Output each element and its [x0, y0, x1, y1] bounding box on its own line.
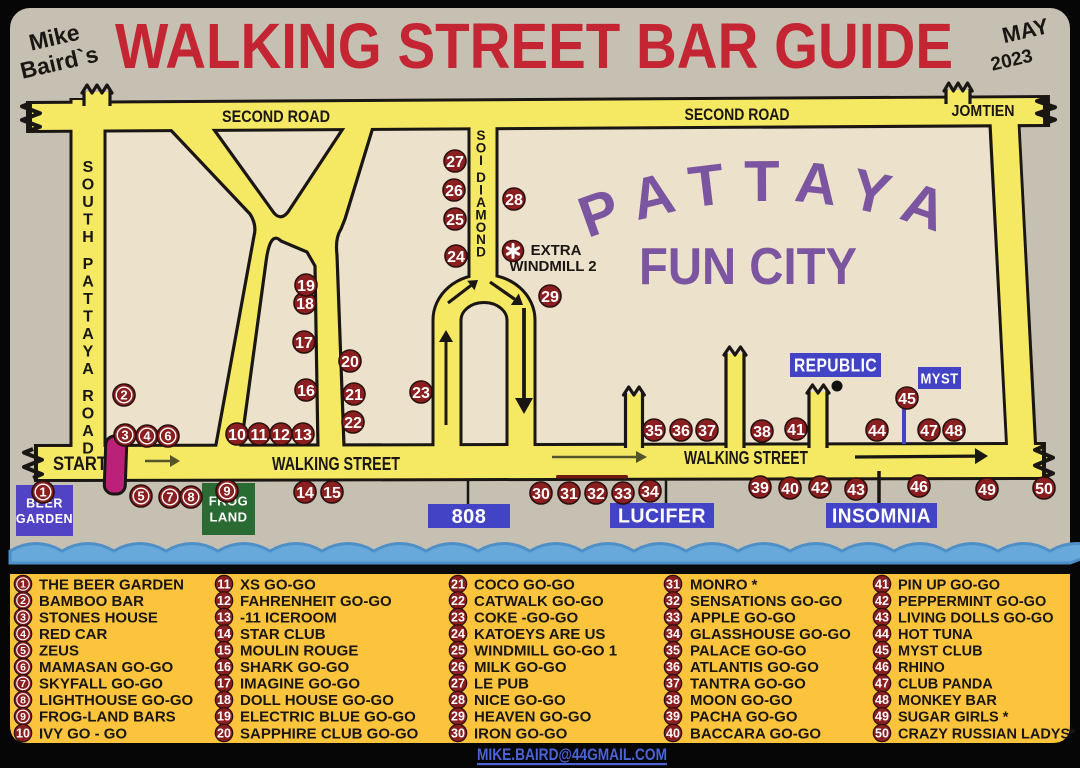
svg-text:PACHA GO-GO: PACHA GO-GO	[690, 709, 798, 726]
svg-text:42: 42	[811, 480, 829, 497]
svg-text:A: A	[82, 326, 94, 343]
svg-text:XS GO-GO: XS GO-GO	[240, 576, 316, 593]
svg-text:CRAZY RUSSIAN LADYS*: CRAZY RUSSIAN LADYS*	[898, 726, 1076, 742]
svg-text:43: 43	[847, 482, 865, 499]
svg-text:46: 46	[875, 660, 889, 674]
svg-text:BAMBOO BAR: BAMBOO BAR	[39, 593, 144, 610]
svg-text:BACCARA GO-GO: BACCARA GO-GO	[690, 725, 821, 742]
svg-text:MYST CLUB: MYST CLUB	[898, 644, 983, 660]
svg-text:31: 31	[560, 486, 578, 503]
svg-text:17: 17	[217, 677, 231, 691]
svg-text:LAND: LAND	[209, 510, 247, 525]
svg-text:2: 2	[20, 595, 26, 607]
svg-text:44: 44	[875, 627, 889, 641]
svg-text:3: 3	[20, 612, 26, 624]
svg-text:37: 37	[698, 423, 716, 440]
svg-text:T: T	[83, 309, 93, 326]
svg-text:P: P	[83, 256, 94, 273]
svg-text:1: 1	[39, 485, 46, 500]
svg-text:50: 50	[875, 726, 889, 740]
svg-text:SAPPHIRE CLUB GO-GO: SAPPHIRE CLUB GO-GO	[240, 725, 419, 742]
svg-text:48: 48	[945, 423, 963, 440]
svg-text:46: 46	[910, 479, 928, 496]
svg-text:15: 15	[217, 644, 231, 658]
svg-text:TANTRA GO-GO: TANTRA GO-GO	[690, 676, 806, 693]
svg-text:41: 41	[787, 422, 805, 439]
svg-text:STONES HOUSE: STONES HOUSE	[39, 609, 158, 626]
svg-text:40: 40	[666, 726, 680, 740]
svg-text:D: D	[476, 245, 486, 260]
svg-text:12: 12	[217, 594, 231, 608]
svg-text:21: 21	[345, 387, 363, 404]
svg-text:EXTRA: EXTRA	[531, 242, 582, 259]
svg-text:47: 47	[920, 423, 938, 440]
svg-text:MONKEY BAR: MONKEY BAR	[898, 693, 997, 709]
svg-text:PEPPERMINT GO-GO: PEPPERMINT GO-GO	[898, 594, 1046, 610]
svg-text:APPLE GO-GO: APPLE GO-GO	[690, 609, 796, 626]
svg-text:S: S	[83, 159, 94, 176]
svg-text:R: R	[82, 388, 94, 405]
svg-text:6: 6	[20, 661, 26, 673]
svg-text:13: 13	[294, 427, 312, 444]
svg-text:THE BEER GARDEN: THE BEER GARDEN	[39, 576, 184, 593]
svg-text:Y: Y	[83, 344, 94, 361]
svg-text:ZEUS: ZEUS	[39, 643, 79, 660]
svg-text:GLASSHOUSE GO-GO: GLASSHOUSE GO-GO	[690, 626, 851, 643]
svg-text:T: T	[83, 291, 93, 308]
svg-text:26: 26	[445, 183, 463, 200]
svg-text:29: 29	[451, 710, 465, 724]
svg-text:LIGHTHOUSE GO-GO: LIGHTHOUSE GO-GO	[39, 692, 194, 709]
svg-text:34: 34	[641, 484, 659, 501]
svg-text:23: 23	[451, 610, 465, 624]
svg-text:INSOMNIA: INSOMNIA	[832, 506, 931, 528]
svg-text:14: 14	[296, 485, 314, 502]
svg-text:40: 40	[781, 481, 799, 498]
svg-text:16: 16	[217, 660, 231, 674]
svg-text:MILK GO-GO: MILK GO-GO	[474, 659, 567, 676]
svg-text:44: 44	[868, 423, 886, 440]
svg-text:A: A	[82, 361, 94, 378]
svg-text:WINDMILL 2: WINDMILL 2	[509, 258, 596, 275]
svg-text:35: 35	[645, 423, 663, 440]
svg-text:24: 24	[447, 249, 465, 266]
svg-text:IMAGINE GO-GO: IMAGINE GO-GO	[240, 676, 360, 693]
svg-text:LE PUB: LE PUB	[474, 676, 529, 693]
svg-text:4: 4	[143, 429, 151, 444]
svg-text:27: 27	[451, 677, 465, 691]
svg-text:45: 45	[898, 391, 916, 408]
svg-text:COCO GO-GO: COCO GO-GO	[474, 576, 575, 593]
svg-text:LUCIFER: LUCIFER	[618, 506, 706, 528]
svg-text:WALKING STREET BAR GUIDE: WALKING STREET BAR GUIDE	[115, 10, 953, 82]
svg-text:31: 31	[666, 577, 680, 591]
svg-text:49: 49	[875, 710, 889, 724]
svg-text:FROG-LAND BARS: FROG-LAND BARS	[39, 709, 176, 726]
svg-text:D: D	[82, 441, 94, 458]
svg-text:MOULIN ROUGE: MOULIN ROUGE	[240, 643, 358, 660]
svg-text:1: 1	[20, 579, 26, 591]
svg-text:IVY GO - GO: IVY GO - GO	[39, 725, 127, 742]
svg-text:7: 7	[20, 678, 26, 690]
svg-text:12: 12	[272, 427, 290, 444]
svg-text:A: A	[82, 423, 94, 440]
svg-text:11: 11	[251, 427, 268, 444]
svg-text:START: START	[53, 454, 107, 475]
svg-text:6: 6	[164, 429, 171, 444]
svg-text:COKE -GO-GO: COKE -GO-GO	[474, 609, 578, 626]
svg-text:WINDMILL GO-GO 1: WINDMILL GO-GO 1	[474, 643, 617, 660]
svg-text:49: 49	[978, 482, 996, 499]
svg-text:A: A	[82, 274, 94, 291]
svg-text:48: 48	[875, 693, 889, 707]
svg-text:39: 39	[666, 710, 680, 724]
svg-text:I: I	[479, 153, 483, 168]
svg-text:ATLANTIS GO-GO: ATLANTIS GO-GO	[690, 659, 819, 676]
svg-text:FAHRENHEIT GO-GO: FAHRENHEIT GO-GO	[240, 593, 392, 610]
svg-text:50: 50	[1035, 481, 1053, 498]
svg-text:WALKING STREET: WALKING STREET	[272, 454, 400, 474]
svg-text:4: 4	[20, 628, 26, 640]
svg-text:28: 28	[451, 693, 465, 707]
svg-text:PALACE GO-GO: PALACE GO-GO	[690, 643, 807, 660]
svg-text:42: 42	[875, 594, 889, 608]
svg-text:808: 808	[452, 506, 487, 528]
svg-text:MONRO *: MONRO *	[690, 576, 758, 593]
svg-text:36: 36	[666, 660, 680, 674]
svg-text:8: 8	[20, 694, 26, 706]
svg-text:FUN CITY: FUN CITY	[639, 238, 857, 296]
svg-text:32: 32	[587, 486, 605, 503]
svg-text:23: 23	[412, 385, 430, 402]
svg-text:37: 37	[666, 677, 680, 691]
svg-text:RED CAR: RED CAR	[39, 626, 108, 643]
svg-text:17: 17	[295, 335, 313, 352]
svg-text:GARDEN: GARDEN	[16, 512, 73, 526]
svg-text:20: 20	[341, 354, 359, 371]
svg-text:SUGAR GIRLS *: SUGAR GIRLS *	[898, 710, 1009, 726]
svg-text:26: 26	[451, 660, 465, 674]
svg-text:U: U	[82, 194, 94, 211]
svg-text:13: 13	[217, 610, 231, 624]
svg-text:24: 24	[451, 627, 465, 641]
svg-text:MOON GO-GO: MOON GO-GO	[690, 692, 793, 709]
svg-text:47: 47	[875, 677, 889, 691]
svg-text:SENSATIONS GO-GO: SENSATIONS GO-GO	[690, 593, 843, 610]
svg-text:29: 29	[541, 289, 559, 306]
svg-text:JOMTIEN: JOMTIEN	[952, 103, 1015, 120]
svg-text:HOT TUNA: HOT TUNA	[898, 627, 973, 643]
svg-text:19: 19	[297, 278, 315, 295]
svg-text:SECOND ROAD: SECOND ROAD	[222, 107, 330, 126]
svg-text:10: 10	[228, 427, 246, 444]
svg-text:LIVING DOLLS GO-GO: LIVING DOLLS GO-GO	[898, 610, 1053, 626]
svg-text:19: 19	[217, 710, 231, 724]
svg-text:30: 30	[451, 726, 465, 740]
svg-text:7: 7	[166, 490, 173, 505]
svg-text:H: H	[82, 229, 94, 246]
svg-text:IRON GO-GO: IRON GO-GO	[474, 725, 568, 742]
svg-text:25: 25	[446, 212, 464, 229]
svg-text:RHINO: RHINO	[898, 660, 945, 676]
svg-text:15: 15	[323, 485, 341, 502]
svg-text:18: 18	[217, 693, 231, 707]
svg-text:CLUB PANDA: CLUB PANDA	[898, 677, 993, 693]
svg-text:CATWALK GO-GO: CATWALK GO-GO	[474, 593, 604, 610]
svg-text:MYST: MYST	[921, 370, 959, 387]
svg-text:SKYFALL GO-GO: SKYFALL GO-GO	[39, 676, 163, 693]
svg-text:10: 10	[16, 726, 30, 740]
svg-text:T: T	[83, 212, 93, 229]
svg-text:22: 22	[344, 415, 362, 432]
svg-text:14: 14	[217, 627, 231, 641]
svg-text:27: 27	[446, 154, 464, 171]
svg-text:5: 5	[20, 645, 26, 657]
svg-text:DOLL HOUSE GO-GO: DOLL HOUSE GO-GO	[240, 692, 394, 709]
svg-text:MAMASAN GO-GO: MAMASAN GO-GO	[39, 659, 173, 676]
svg-text:WALKING STREET: WALKING STREET	[684, 448, 808, 468]
svg-text:33: 33	[666, 610, 680, 624]
svg-text:41: 41	[875, 577, 889, 591]
svg-text:25: 25	[451, 644, 465, 658]
svg-text:36: 36	[672, 423, 690, 440]
svg-text:MIKE.BAIRD@44GMAIL.COM: MIKE.BAIRD@44GMAIL.COM	[477, 745, 667, 764]
svg-text:45: 45	[875, 644, 889, 658]
svg-text:11: 11	[217, 577, 230, 591]
svg-text:HEAVEN GO-GO: HEAVEN GO-GO	[474, 709, 592, 726]
svg-text:21: 21	[451, 577, 465, 591]
svg-text:9: 9	[223, 484, 230, 499]
svg-text:35: 35	[666, 644, 680, 658]
svg-text:33: 33	[614, 486, 632, 503]
svg-text:20: 20	[217, 726, 231, 740]
svg-text:43: 43	[875, 610, 889, 624]
svg-text:18: 18	[296, 296, 314, 313]
svg-text:-11 ICEROOM: -11 ICEROOM	[240, 609, 337, 626]
svg-text:ELECTRIC BLUE GO-GO: ELECTRIC BLUE GO-GO	[240, 709, 416, 726]
svg-text:NICE GO-GO: NICE GO-GO	[474, 692, 566, 709]
svg-text:38: 38	[666, 693, 680, 707]
svg-text:16: 16	[297, 383, 315, 400]
svg-text:PIN UP GO-GO: PIN UP GO-GO	[898, 577, 1000, 593]
svg-text:8: 8	[187, 490, 194, 505]
svg-text:39: 39	[751, 480, 769, 497]
svg-text:SHARK GO-GO: SHARK GO-GO	[240, 659, 350, 676]
svg-text:KATOEYS ARE US: KATOEYS ARE US	[474, 626, 605, 643]
svg-text:3: 3	[121, 428, 128, 443]
svg-text:5: 5	[137, 489, 144, 504]
svg-text:O: O	[82, 406, 94, 423]
svg-text:2: 2	[120, 388, 127, 403]
svg-text:9: 9	[20, 711, 26, 723]
svg-text:30: 30	[532, 486, 550, 503]
svg-text:REPUBLIC: REPUBLIC	[794, 355, 877, 375]
svg-text:SECOND ROAD: SECOND ROAD	[685, 105, 790, 124]
svg-text:22: 22	[451, 594, 465, 608]
svg-text:STAR CLUB: STAR CLUB	[240, 626, 326, 643]
svg-text:34: 34	[666, 627, 680, 641]
svg-text:O: O	[82, 177, 94, 194]
svg-text:28: 28	[505, 192, 523, 209]
svg-text:32: 32	[666, 594, 680, 608]
svg-text:38: 38	[753, 424, 771, 441]
